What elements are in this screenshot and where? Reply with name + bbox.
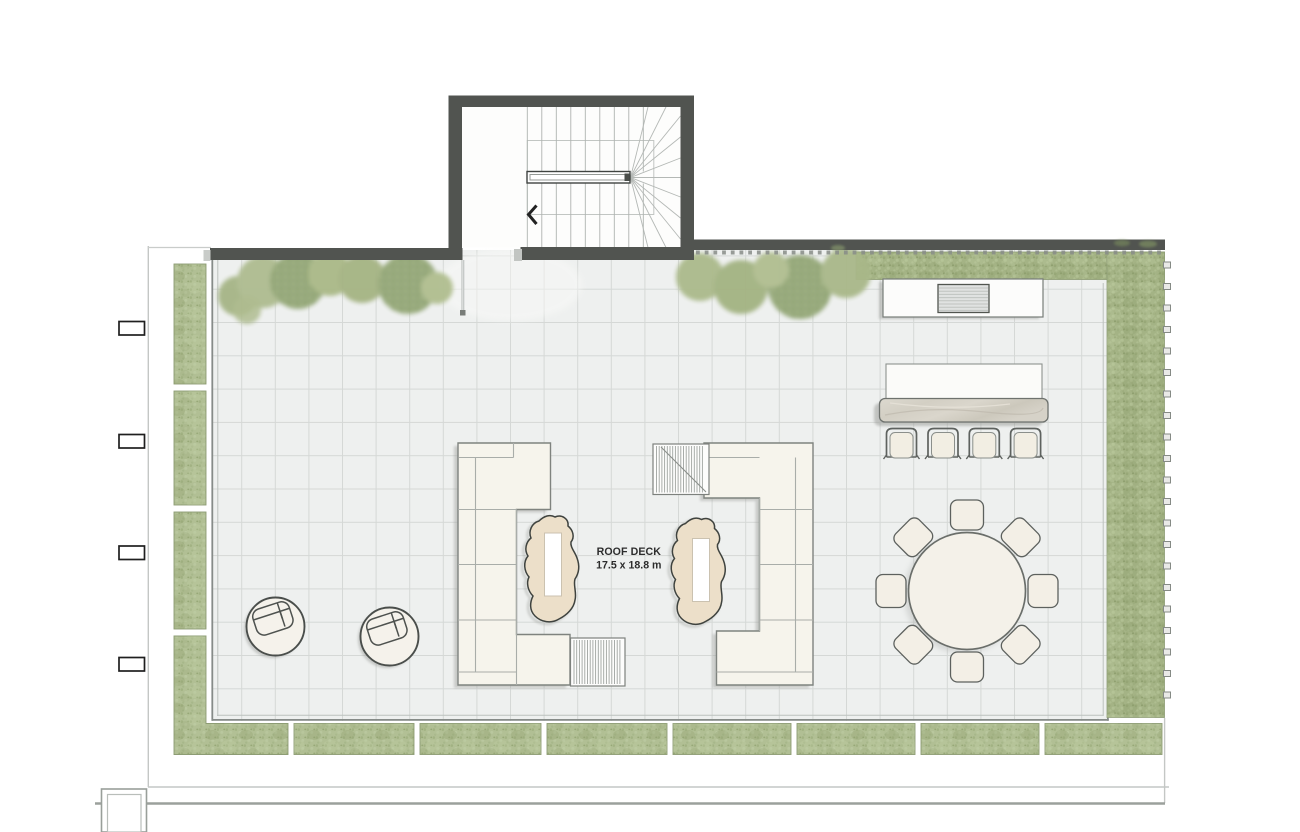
svg-text:ROOF DECK: ROOF DECK [597,546,662,558]
svg-text:17.5 x 18.8 m: 17.5 x 18.8 m [596,559,661,571]
